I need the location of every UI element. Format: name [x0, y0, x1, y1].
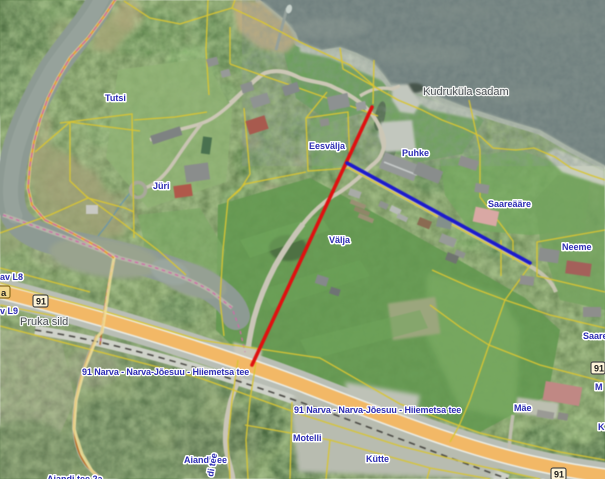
svg-text:Puhke: Puhke: [402, 148, 429, 158]
svg-text:91: 91: [36, 297, 46, 307]
svg-text:Aiandi tee 2a: Aiandi tee 2a: [47, 474, 104, 479]
svg-text:Jüri: Jüri: [153, 181, 170, 191]
svg-text:M: M: [595, 382, 603, 392]
svg-text:Motelli: Motelli: [293, 433, 322, 443]
svg-text:av L8: av L8: [0, 272, 23, 282]
svg-text:a: a: [1, 288, 7, 299]
svg-text:91 Narva - Narva-Jõesuu - Hiie: 91 Narva - Narva-Jõesuu - Hiiemetsa tee: [294, 405, 461, 415]
svg-text:v L9: v L9: [0, 306, 18, 316]
svg-text:K: K: [598, 422, 605, 432]
svg-text:91 Narva - Narva-Jõesuu - Hiie: 91 Narva - Narva-Jõesuu - Hiiemetsa tee: [82, 367, 249, 377]
svg-text:Tutsi: Tutsi: [105, 93, 126, 103]
svg-text:Välja: Välja: [329, 235, 351, 245]
svg-text:Pruka sild: Pruka sild: [20, 316, 68, 328]
svg-text:Aiandi tee: Aiandi tee: [184, 455, 227, 465]
svg-text:Kudruküla sadam: Kudruküla sadam: [423, 86, 509, 98]
svg-text:Eesvälja: Eesvälja: [309, 141, 346, 151]
svg-text:Neeme: Neeme: [562, 242, 592, 252]
svg-text:91: 91: [554, 470, 564, 479]
svg-text:Saareääre: Saareääre: [488, 199, 531, 209]
svg-text:Kütte: Kütte: [366, 454, 389, 464]
svg-text:Saare: Saare: [583, 331, 605, 341]
svg-text:Mäe: Mäe: [514, 403, 532, 413]
svg-text:91: 91: [594, 364, 604, 374]
